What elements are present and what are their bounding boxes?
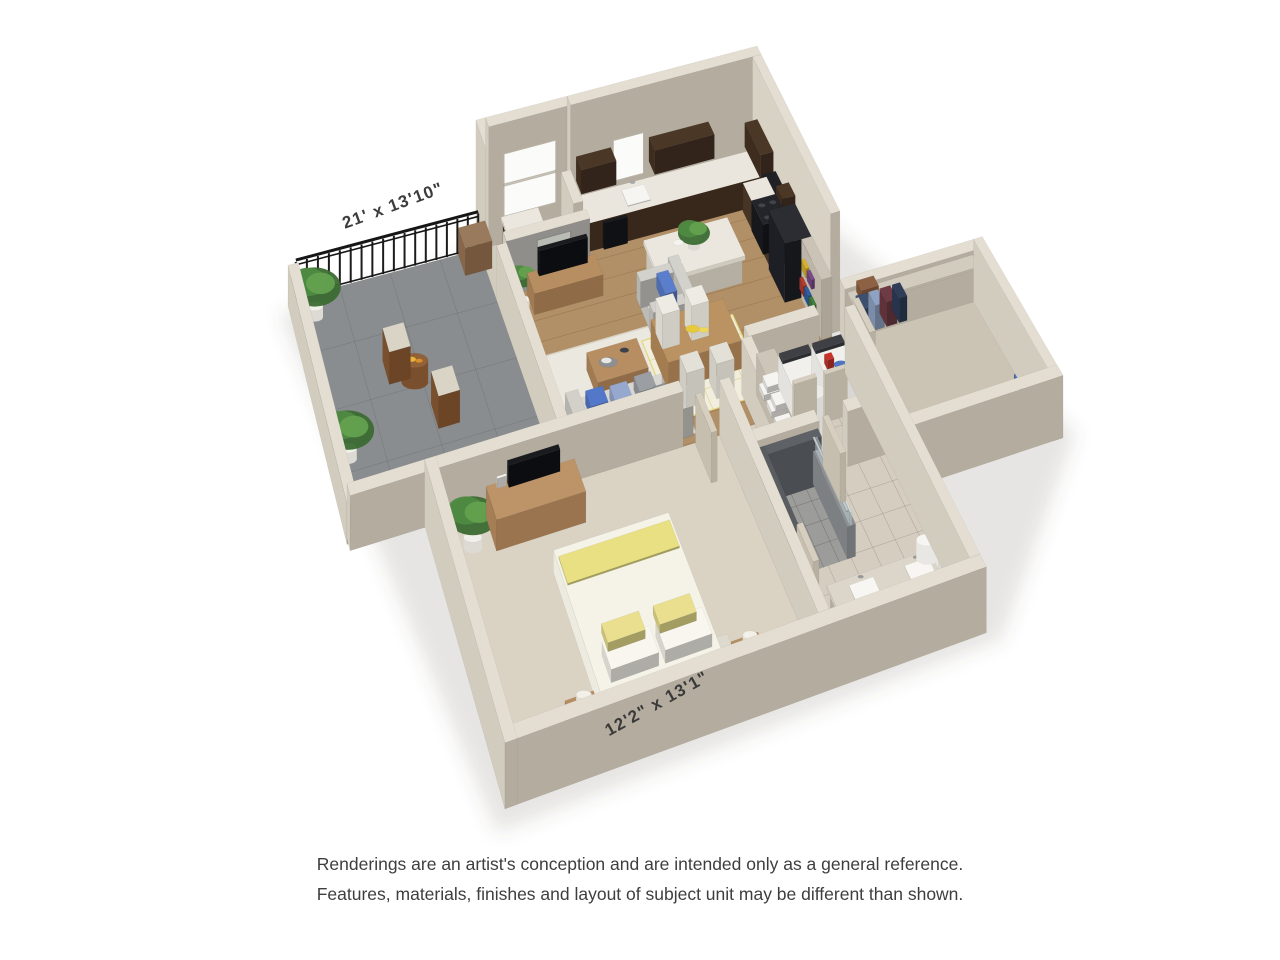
vanity-faucet-1 <box>858 575 864 578</box>
kitchen-window <box>613 133 643 182</box>
disclaimer-line-2: Features, materials, finishes and layout… <box>0 879 1280 909</box>
dining-centerpiece-1 <box>686 325 700 333</box>
floor-plan-rendering <box>0 0 1280 960</box>
fruit-bowl-2 <box>415 359 422 363</box>
island-bowl-2 <box>673 240 684 246</box>
hanging-chair <box>459 221 493 276</box>
detergent-bottle <box>824 352 834 369</box>
kitchen-faucet <box>630 181 635 184</box>
balcony-chair-1 <box>383 322 411 384</box>
floor-plan-page: 21' x 13'10" 12'2" x 13'1" Renderings ar… <box>0 0 1280 960</box>
disclaimer: Renderings are an artist's conception an… <box>0 849 1280 909</box>
coffee-table-bowl <box>601 358 612 364</box>
dining-chair-far-1 <box>656 293 680 349</box>
dishwasher <box>603 215 628 250</box>
burner-2 <box>769 200 776 204</box>
disclaimer-line-1: Renderings are an artist's conception an… <box>0 849 1280 879</box>
dresser-photo-frame <box>497 474 507 489</box>
coffee-table-box <box>620 348 629 353</box>
dining-centerpiece-2 <box>699 327 709 332</box>
burner-1 <box>758 203 765 207</box>
